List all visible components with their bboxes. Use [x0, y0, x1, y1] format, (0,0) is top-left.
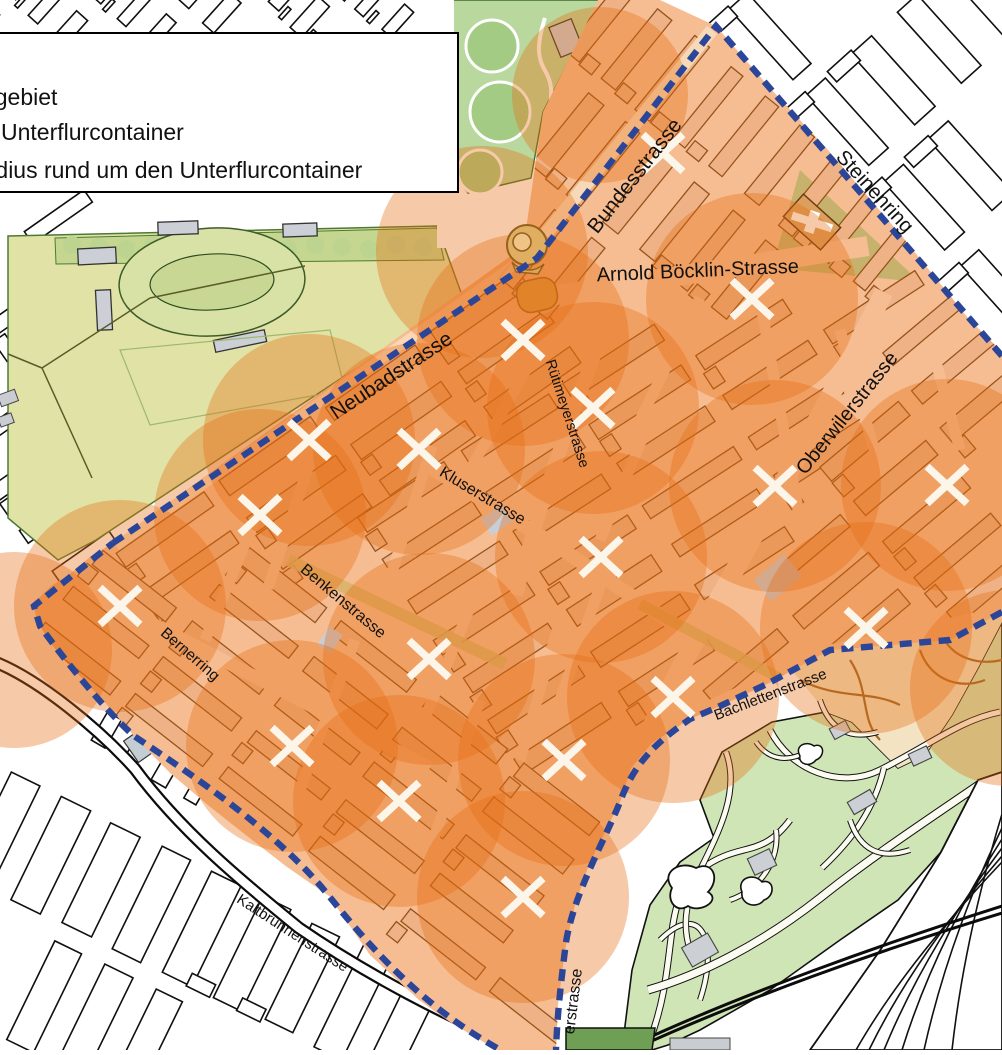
- svg-text:Pilotgebiet: Pilotgebiet: [0, 84, 58, 110]
- svg-text:Unterflurcontainer: Unterflurcontainer: [1, 119, 184, 145]
- svg-text:Radius rund um den Unterflurco: Radius rund um den Unterflurcontainer: [0, 157, 363, 183]
